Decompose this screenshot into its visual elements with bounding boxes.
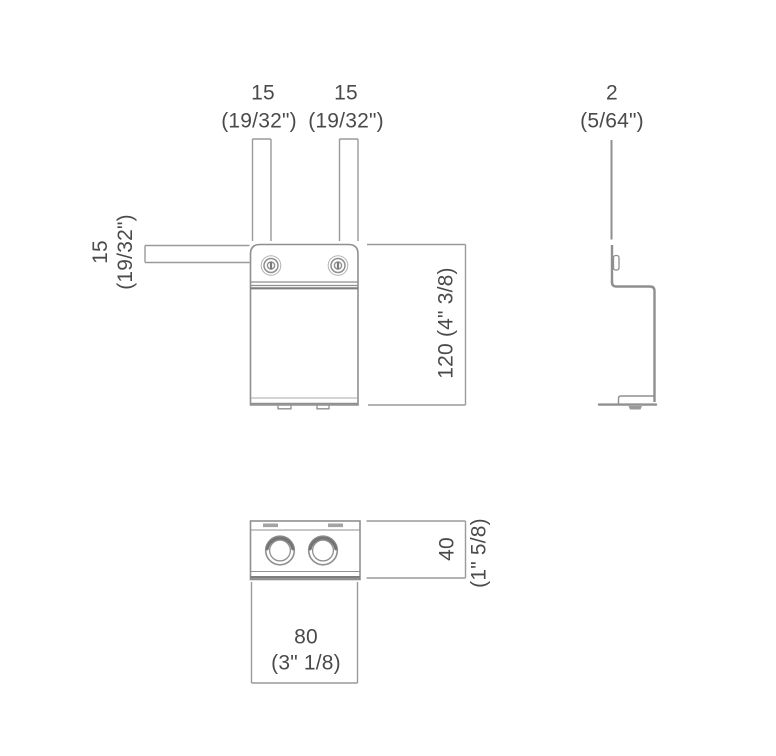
dim-side-thickness-mm: 2 (606, 81, 618, 106)
screw-left-icon (261, 256, 281, 276)
bottom-view (251, 521, 361, 580)
dim-front-height: 120 (4" 3/8) (434, 267, 459, 378)
technical-drawing (0, 0, 776, 756)
knob-right-icon (309, 536, 338, 565)
dim-bottom-width-inch: (3" 1/8) (271, 651, 341, 676)
dim-front-top-right-inch: (19/32") (308, 109, 384, 134)
side-view (599, 140, 656, 410)
dim-bottom-depth-mm: 40 (435, 537, 460, 561)
dim-front-side-left-mm: 15 (88, 214, 113, 290)
dim-bottom-width-mm: 80 (294, 625, 318, 650)
dim-front-side-left-inch: (19/32") (113, 214, 138, 290)
dim-side-thickness-inch: (5/64") (580, 109, 644, 134)
front-view-dimension-lines (145, 139, 466, 405)
dim-bottom-depth-inch: (1" 5/8) (467, 518, 492, 588)
drawing-canvas: 15 (19/32") 15 (19/32") 15 (19/32") 120 … (0, 0, 776, 756)
dim-front-top-left-mm: 15 (251, 81, 275, 106)
screw-right-icon (328, 256, 348, 276)
dim-front-side-left: 15 (19/32") (88, 214, 138, 290)
dim-front-top-right-mm: 15 (334, 81, 358, 106)
knob-left-icon (266, 536, 295, 565)
front-view (251, 245, 359, 409)
dim-front-top-left-inch: (19/32") (221, 109, 297, 134)
